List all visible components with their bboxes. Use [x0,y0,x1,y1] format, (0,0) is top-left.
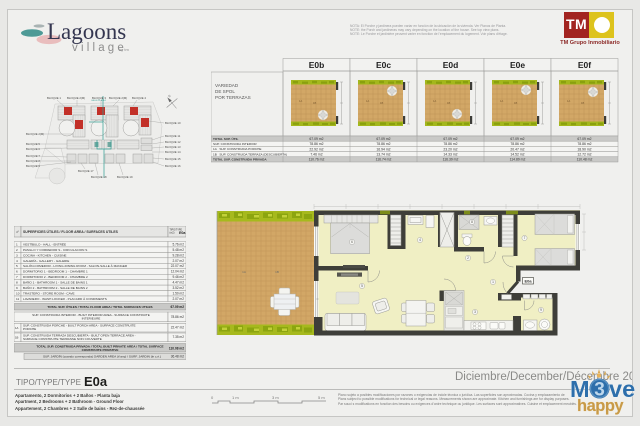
svg-text:6: 6 [351,240,353,244]
svg-text:67.09 m2: 67.09 m2 [577,137,591,141]
svg-text:116.74 m2: 116.74 m2 [376,158,392,162]
svg-text:4: 4 [419,238,421,242]
svg-text:2.07 m2: 2.07 m2 [172,259,184,263]
svg-text:3: 3 [16,253,18,257]
svg-text:7: 7 [16,275,18,279]
svg-text:SALÓN-COMEDOR - LIVING-DINING: SALÓN-COMEDOR - LIVING-DINING ROOM - SAL… [23,263,128,268]
svg-text:78.86 m2: 78.86 m2 [309,142,323,146]
svg-text:3: 3 [474,310,476,314]
svg-text:PASILLO Y CORREDOR S - CIRCULA: PASILLO Y CORREDOR S - CIRCULACION S [23,248,87,252]
svg-text:BLOQUE 18: BLOQUE 18 [91,175,107,179]
svg-text:DE SPOL: DE SPOL [215,89,235,94]
svg-text:BLOQUE 19: BLOQUE 19 [117,175,133,179]
svg-text:7.35 m2: 7.35 m2 [172,335,184,339]
svg-text:E0a: E0a [179,231,186,235]
svg-text:1: 1 [16,242,18,246]
svg-text:5: 5 [16,264,18,268]
svg-text:BLOQUE 2(M): BLOQUE 2(M) [67,96,85,100]
svg-text:E0f: E0f [578,60,591,70]
svg-text:10: 10 [16,292,20,296]
svg-text:5.48 m2: 5.48 m2 [172,248,184,252]
svg-text:SUP. CONSTRUIDA PORCHE - BUILT: SUP. CONSTRUIDA PORCHE - BUILT PORCH ARE… [23,324,136,328]
svg-text:SUPERFICIES ÚTILES / FLOOR ARE: SUPERFICIES ÚTILES / FLOOR AREA / SURFAC… [23,229,119,234]
svg-text:114.89 m2: 114.89 m2 [510,158,526,162]
svg-text:22.07 m2: 22.07 m2 [171,264,185,268]
svg-text:78.86 m2: 78.86 m2 [443,142,457,146]
svg-text:12.04 m2: 12.04 m2 [171,270,185,274]
svg-text:DORMITORIO 2 - BEDROOM 2 - CHA: DORMITORIO 2 - BEDROOM 2 - CHAMBRE 2 [23,275,88,279]
svg-text:2: 2 [467,256,469,260]
svg-text:E0c: E0c [376,60,391,70]
svg-text:9.46 m2: 9.46 m2 [172,275,184,279]
svg-text:7: 7 [524,236,526,240]
svg-text:23.20 m2: 23.20 m2 [443,147,457,151]
svg-text:BLOQUE 1: BLOQUE 1 [47,96,61,100]
svg-text:1B: 1B [15,336,19,340]
svg-text:4: 4 [16,259,18,263]
svg-text:TOTAL SUP. ÚTIL: TOTAL SUP. ÚTIL [213,136,238,141]
svg-text:11: 11 [16,297,19,301]
svg-text:SUP. CONSTRUIDA INTERIOR: SUP. CONSTRUIDA INTERIOR [213,142,257,146]
svg-text:TRASTERO - STORE ROOM - CAVE: TRASTERO - STORE ROOM - CAVE [23,292,75,296]
svg-text:36.48 m2: 36.48 m2 [171,355,185,359]
svg-text:8: 8 [16,281,18,285]
svg-text:5.76 m2: 5.76 m2 [172,242,184,246]
svg-text:78.86 m2: 78.86 m2 [510,142,524,146]
svg-text:67.09 m2: 67.09 m2 [376,137,390,141]
svg-text:9.28 m2: 9.28 m2 [172,253,184,257]
svg-text:110.08 m2: 110.08 m2 [169,346,184,350]
svg-text:6: 6 [16,270,18,274]
svg-text:5 m: 5 m [318,395,325,400]
svg-text:1B SUP. CONSTRUIDA TERRAZA (: 1B SUP. CONSTRUIDA TERRAZA (DESCUBIERTA) [213,152,287,156]
svg-text:BLOQUE 4: BLOQUE 4 [132,96,146,100]
svg-text:4.47 m2: 4.47 m2 [172,281,184,285]
svg-text:BLOQUE 2(M): BLOQUE 2(M) [109,96,127,100]
svg-text:1.50 m2: 1.50 m2 [172,292,184,296]
svg-text:2: 2 [16,248,18,252]
svg-text:(m2): (m2) [170,232,175,235]
svg-text:67.09 m2: 67.09 m2 [309,137,323,141]
svg-text:67.09 m2: 67.09 m2 [171,305,185,309]
svg-text:8: 8 [471,220,473,224]
svg-text:Lagoons: Lagoons [47,19,126,44]
svg-text:7.46 m2: 7.46 m2 [310,153,322,157]
svg-text:1B: 1B [275,270,279,274]
svg-text:N: N [167,94,171,98]
svg-text:1A: 1A [242,270,246,274]
svg-text:12.72 m2: 12.72 m2 [577,153,591,157]
svg-text:78.86 m2: 78.86 m2 [376,142,390,146]
svg-text:BLOQUE 16: BLOQUE 16 [165,164,181,168]
svg-text:POR TERRAZAS: POR TERRAZAS [215,95,251,100]
svg-text:1 m: 1 m [232,395,239,400]
svg-text:happy: happy [577,397,624,415]
svg-text:116.39 m2: 116.39 m2 [443,158,459,162]
svg-text:16.94 m2: 16.94 m2 [376,147,390,151]
svg-text:DORMITORIO 1 - BEDROOM 1 - CHA: DORMITORIO 1 - BEDROOM 1 - CHAMBRE 1 [23,270,88,274]
svg-text:22.47 m2: 22.47 m2 [171,326,185,330]
svg-text:TOTAL SUP. CONSTRUIDA PRIVADA: TOTAL SUP. CONSTRUIDA PRIVADA [213,158,267,162]
svg-text:67.09 m2: 67.09 m2 [443,137,457,141]
svg-text:1A: 1A [15,326,19,330]
svg-text:E0a: E0a [524,278,532,283]
svg-text:18.90 m2: 18.90 m2 [577,147,591,151]
svg-text:14.33 m2: 14.33 m2 [443,153,457,157]
svg-text:2.07 m2: 2.07 m2 [172,297,184,301]
svg-text:5: 5 [361,284,363,288]
svg-text:1: 1 [492,280,494,284]
svg-text:VESTÍBULO - HALL - ENTRÉE: VESTÍBULO - HALL - ENTRÉE [23,241,66,246]
svg-text:BLOQUE 13: BLOQUE 13 [165,145,181,149]
svg-text:BLOQUE 3: BLOQUE 3 [92,96,106,100]
svg-text:BLOQUE 14: BLOQUE 14 [165,150,181,154]
svg-text:78.86 m2: 78.86 m2 [577,142,591,146]
svg-text:14.52 m2: 14.52 m2 [510,153,524,157]
svg-text:BAÑO 2 - BATHROOM 2 - SALLE DE: BAÑO 2 - BATHROOM 2 - SALLE DE BAINS 2 [23,285,88,290]
svg-text:110.76 m2: 110.76 m2 [309,158,325,162]
svg-text:3 m: 3 m [272,395,279,400]
svg-text:PORCHE: PORCHE [23,327,36,331]
svg-text:CONSTRUITE PRIVATIVE: CONSTRUITE PRIVATIVE [82,348,119,352]
svg-text:13.74 m2: 13.74 m2 [376,153,390,157]
svg-text:22.92 m2: 22.92 m2 [309,147,323,151]
svg-text:0: 0 [211,395,214,400]
svg-text:3.52 m2: 3.52 m2 [172,286,184,290]
svg-text:BLOQUE 17: BLOQUE 17 [78,169,94,173]
svg-text:20.47 m2: 20.47 m2 [510,147,524,151]
svg-text:9: 9 [16,286,18,290]
svg-text:COCINA - KITCHEN - CUISINE: COCINA - KITCHEN - CUISINE [23,253,67,257]
svg-text:BLOQUE 10: BLOQUE 10 [165,121,181,125]
svg-text:LAVADERO - WASH LOCKER - PLACA: LAVADERO - WASH LOCKER - PLACARD À CONDI… [23,297,107,301]
svg-text:9: 9 [540,308,542,312]
svg-text:TOTAL SUP. ÚTILES / TOTAL FLOO: TOTAL SUP. ÚTILES / TOTAL FLOOR AREA / T… [47,304,152,309]
svg-text:SUP. JARDÍN (cuando correspond: SUP. JARDÍN (cuando corresponda) GARDEN … [43,355,161,359]
svg-text:E0d: E0d [443,60,459,70]
svg-text:BAÑO 1 - BATHROOM 1 - SALLE DE: BAÑO 1 - BATHROOM 1 - SALLE DE BAINS 1 [23,280,88,285]
svg-text:1A SUP. CONSTRUIDA PORCHE: 1A SUP. CONSTRUIDA PORCHE [213,147,261,151]
svg-text:67.09 m2: 67.09 m2 [510,137,524,141]
svg-text:E0b: E0b [309,60,325,70]
svg-text:BLOQUE 12: BLOQUE 12 [165,140,181,144]
svg-text:78.86 m2: 78.86 m2 [171,315,185,319]
svg-text:INTERIEURE: INTERIEURE [82,316,101,320]
svg-text:SURFACE CONSTRUITE TERRASSE NO: SURFACE CONSTRUITE TERRASSE NON COUVERTE [23,337,102,341]
svg-text:110.48 m2: 110.48 m2 [577,158,593,162]
svg-text:E0e: E0e [510,60,525,70]
svg-text:BLOQUE 15: BLOQUE 15 [165,157,181,161]
svg-text:BLOQUE 11: BLOQUE 11 [165,134,181,138]
svg-text:GALERÍA - GALLERY - GALERIE: GALERÍA - GALLERY - GALERIE [23,259,69,263]
svg-text:VARIEDAD: VARIEDAD [215,83,239,88]
svg-text:by tm: by tm [119,47,129,52]
